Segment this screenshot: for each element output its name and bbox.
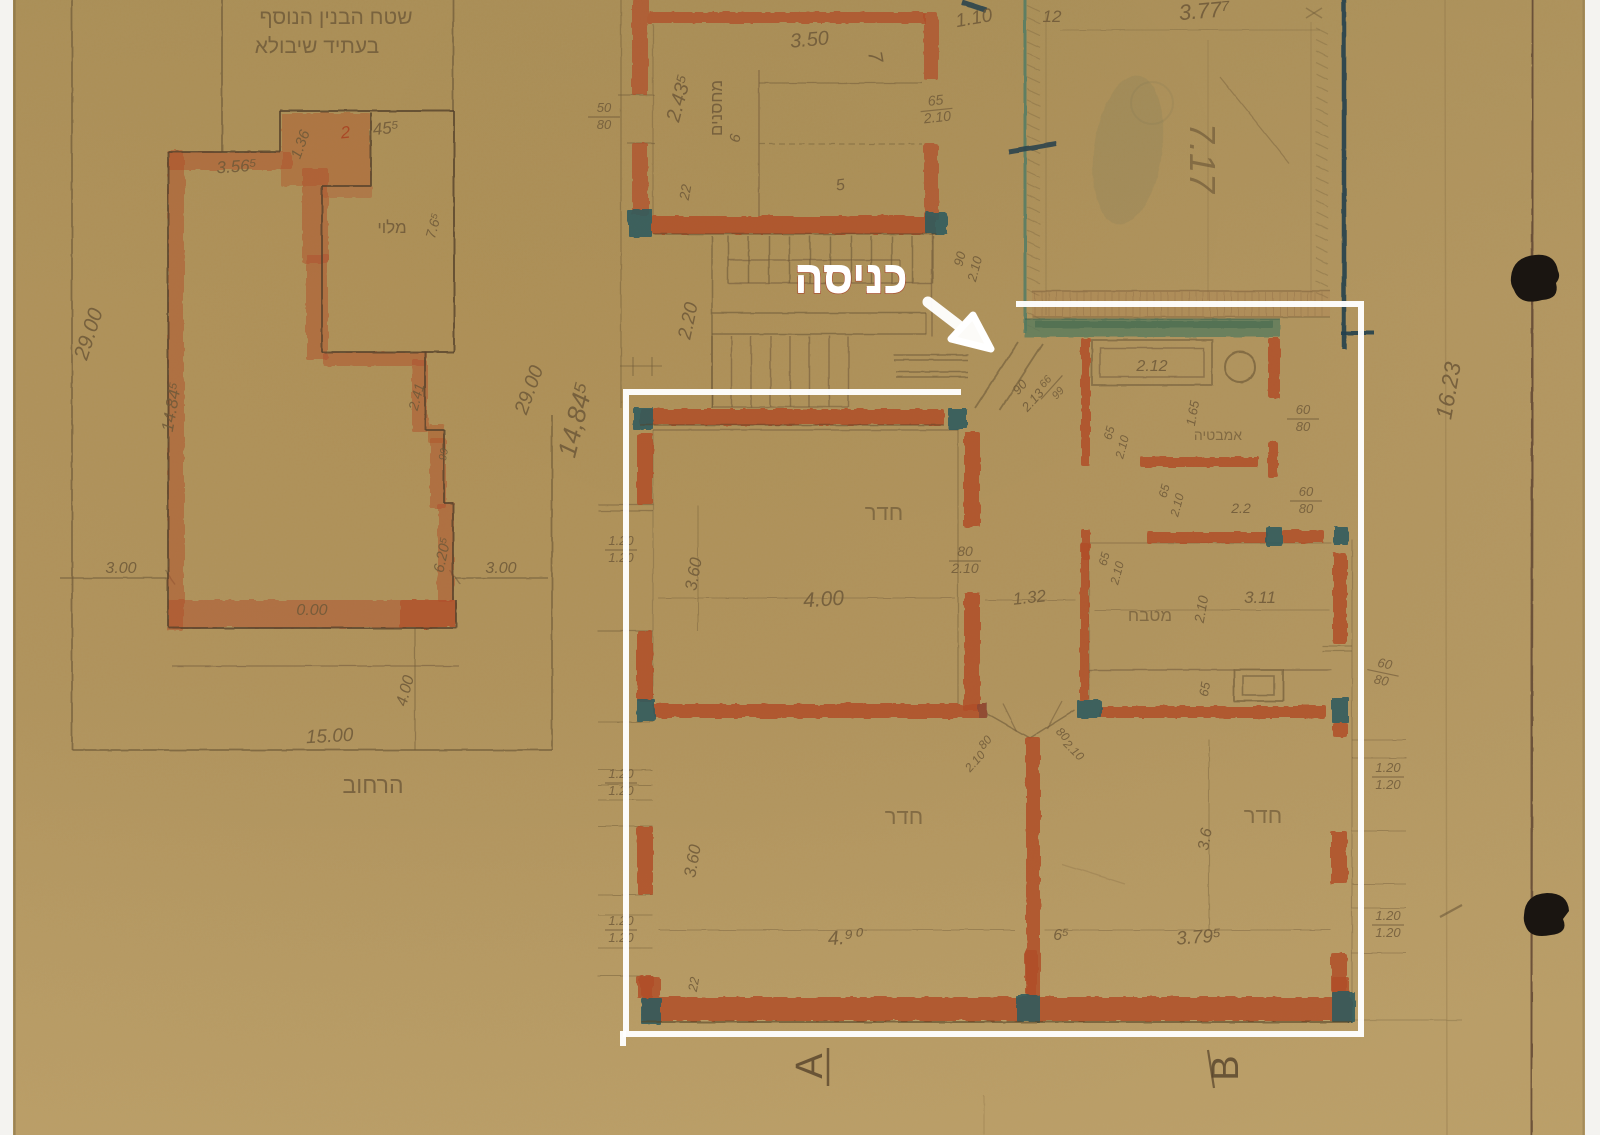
svg-text:15.00: 15.00 bbox=[305, 725, 354, 748]
svg-text:3.00: 3.00 bbox=[485, 560, 516, 577]
svg-text:60: 60 bbox=[1296, 402, 1311, 417]
svg-text:1.20: 1.20 bbox=[608, 533, 634, 548]
svg-text:מטבח: מטבח bbox=[1128, 606, 1172, 625]
svg-text:חדר: חדר bbox=[865, 500, 903, 525]
svg-text:1.20: 1.20 bbox=[608, 783, 634, 798]
svg-text:שטח הבנין הנוסף: שטח הבנין הנוסף bbox=[259, 6, 412, 29]
svg-text:1.32: 1.32 bbox=[1012, 586, 1047, 608]
svg-text:4.00: 4.00 bbox=[802, 587, 845, 613]
svg-text:65: 65 bbox=[927, 91, 944, 109]
svg-text:3.79⁵: 3.79⁵ bbox=[1175, 925, 1221, 949]
svg-text:2.2: 2.2 bbox=[1230, 500, 1251, 516]
svg-text:3.00: 3.00 bbox=[105, 560, 136, 577]
svg-text:מלוי: מלוי bbox=[377, 218, 406, 237]
svg-text:כניסה: כניסה bbox=[794, 253, 907, 301]
svg-text:3.50: 3.50 bbox=[789, 27, 830, 52]
svg-text:1.20: 1.20 bbox=[1375, 777, 1401, 792]
svg-text:1.20: 1.20 bbox=[1375, 760, 1401, 775]
svg-text:1.20: 1.20 bbox=[1375, 925, 1401, 940]
svg-text:80: 80 bbox=[1296, 419, 1311, 434]
svg-text:80: 80 bbox=[957, 543, 973, 559]
svg-text:4.⁹⁰: 4.⁹⁰ bbox=[827, 926, 865, 951]
svg-text:בעתיד שיבולא: בעתיד שיבולא bbox=[255, 35, 380, 58]
svg-text:80: 80 bbox=[1299, 501, 1314, 516]
svg-text:1.20: 1.20 bbox=[608, 913, 634, 928]
svg-text:3.56⁵: 3.56⁵ bbox=[216, 156, 257, 178]
svg-text:חדר: חדר bbox=[885, 804, 923, 829]
svg-text:אמבטיה: אמבטיה bbox=[1194, 427, 1242, 443]
svg-text:2.12: 2.12 bbox=[1135, 358, 1167, 375]
svg-text:1.20: 1.20 bbox=[608, 930, 634, 945]
svg-text:1.20: 1.20 bbox=[1375, 908, 1401, 923]
svg-text:0.00: 0.00 bbox=[296, 602, 327, 619]
svg-text:.45⁵: .45⁵ bbox=[367, 117, 400, 139]
svg-text:22: 22 bbox=[676, 183, 695, 202]
svg-text:1.20: 1.20 bbox=[608, 550, 634, 565]
svg-text:50: 50 bbox=[597, 100, 612, 115]
svg-text:12: 12 bbox=[1043, 7, 1062, 26]
svg-text:הרחוב: הרחוב bbox=[342, 772, 403, 798]
svg-text:חדר: חדר bbox=[1244, 803, 1282, 828]
svg-text:A: A bbox=[789, 1053, 831, 1079]
svg-text:3.11: 3.11 bbox=[1244, 588, 1276, 607]
svg-text:80: 80 bbox=[597, 117, 612, 132]
svg-text:1.20: 1.20 bbox=[608, 766, 634, 781]
svg-text:2.10: 2.10 bbox=[950, 560, 978, 576]
svg-text:6⁵: 6⁵ bbox=[1053, 927, 1069, 944]
svg-text:60: 60 bbox=[1299, 484, 1314, 499]
svg-text:7.17: 7.17 bbox=[1182, 123, 1223, 195]
svg-text:99: 99 bbox=[437, 447, 451, 461]
svg-text:2.10: 2.10 bbox=[922, 108, 952, 127]
svg-text:מחסנים: מחסנים bbox=[707, 80, 726, 136]
